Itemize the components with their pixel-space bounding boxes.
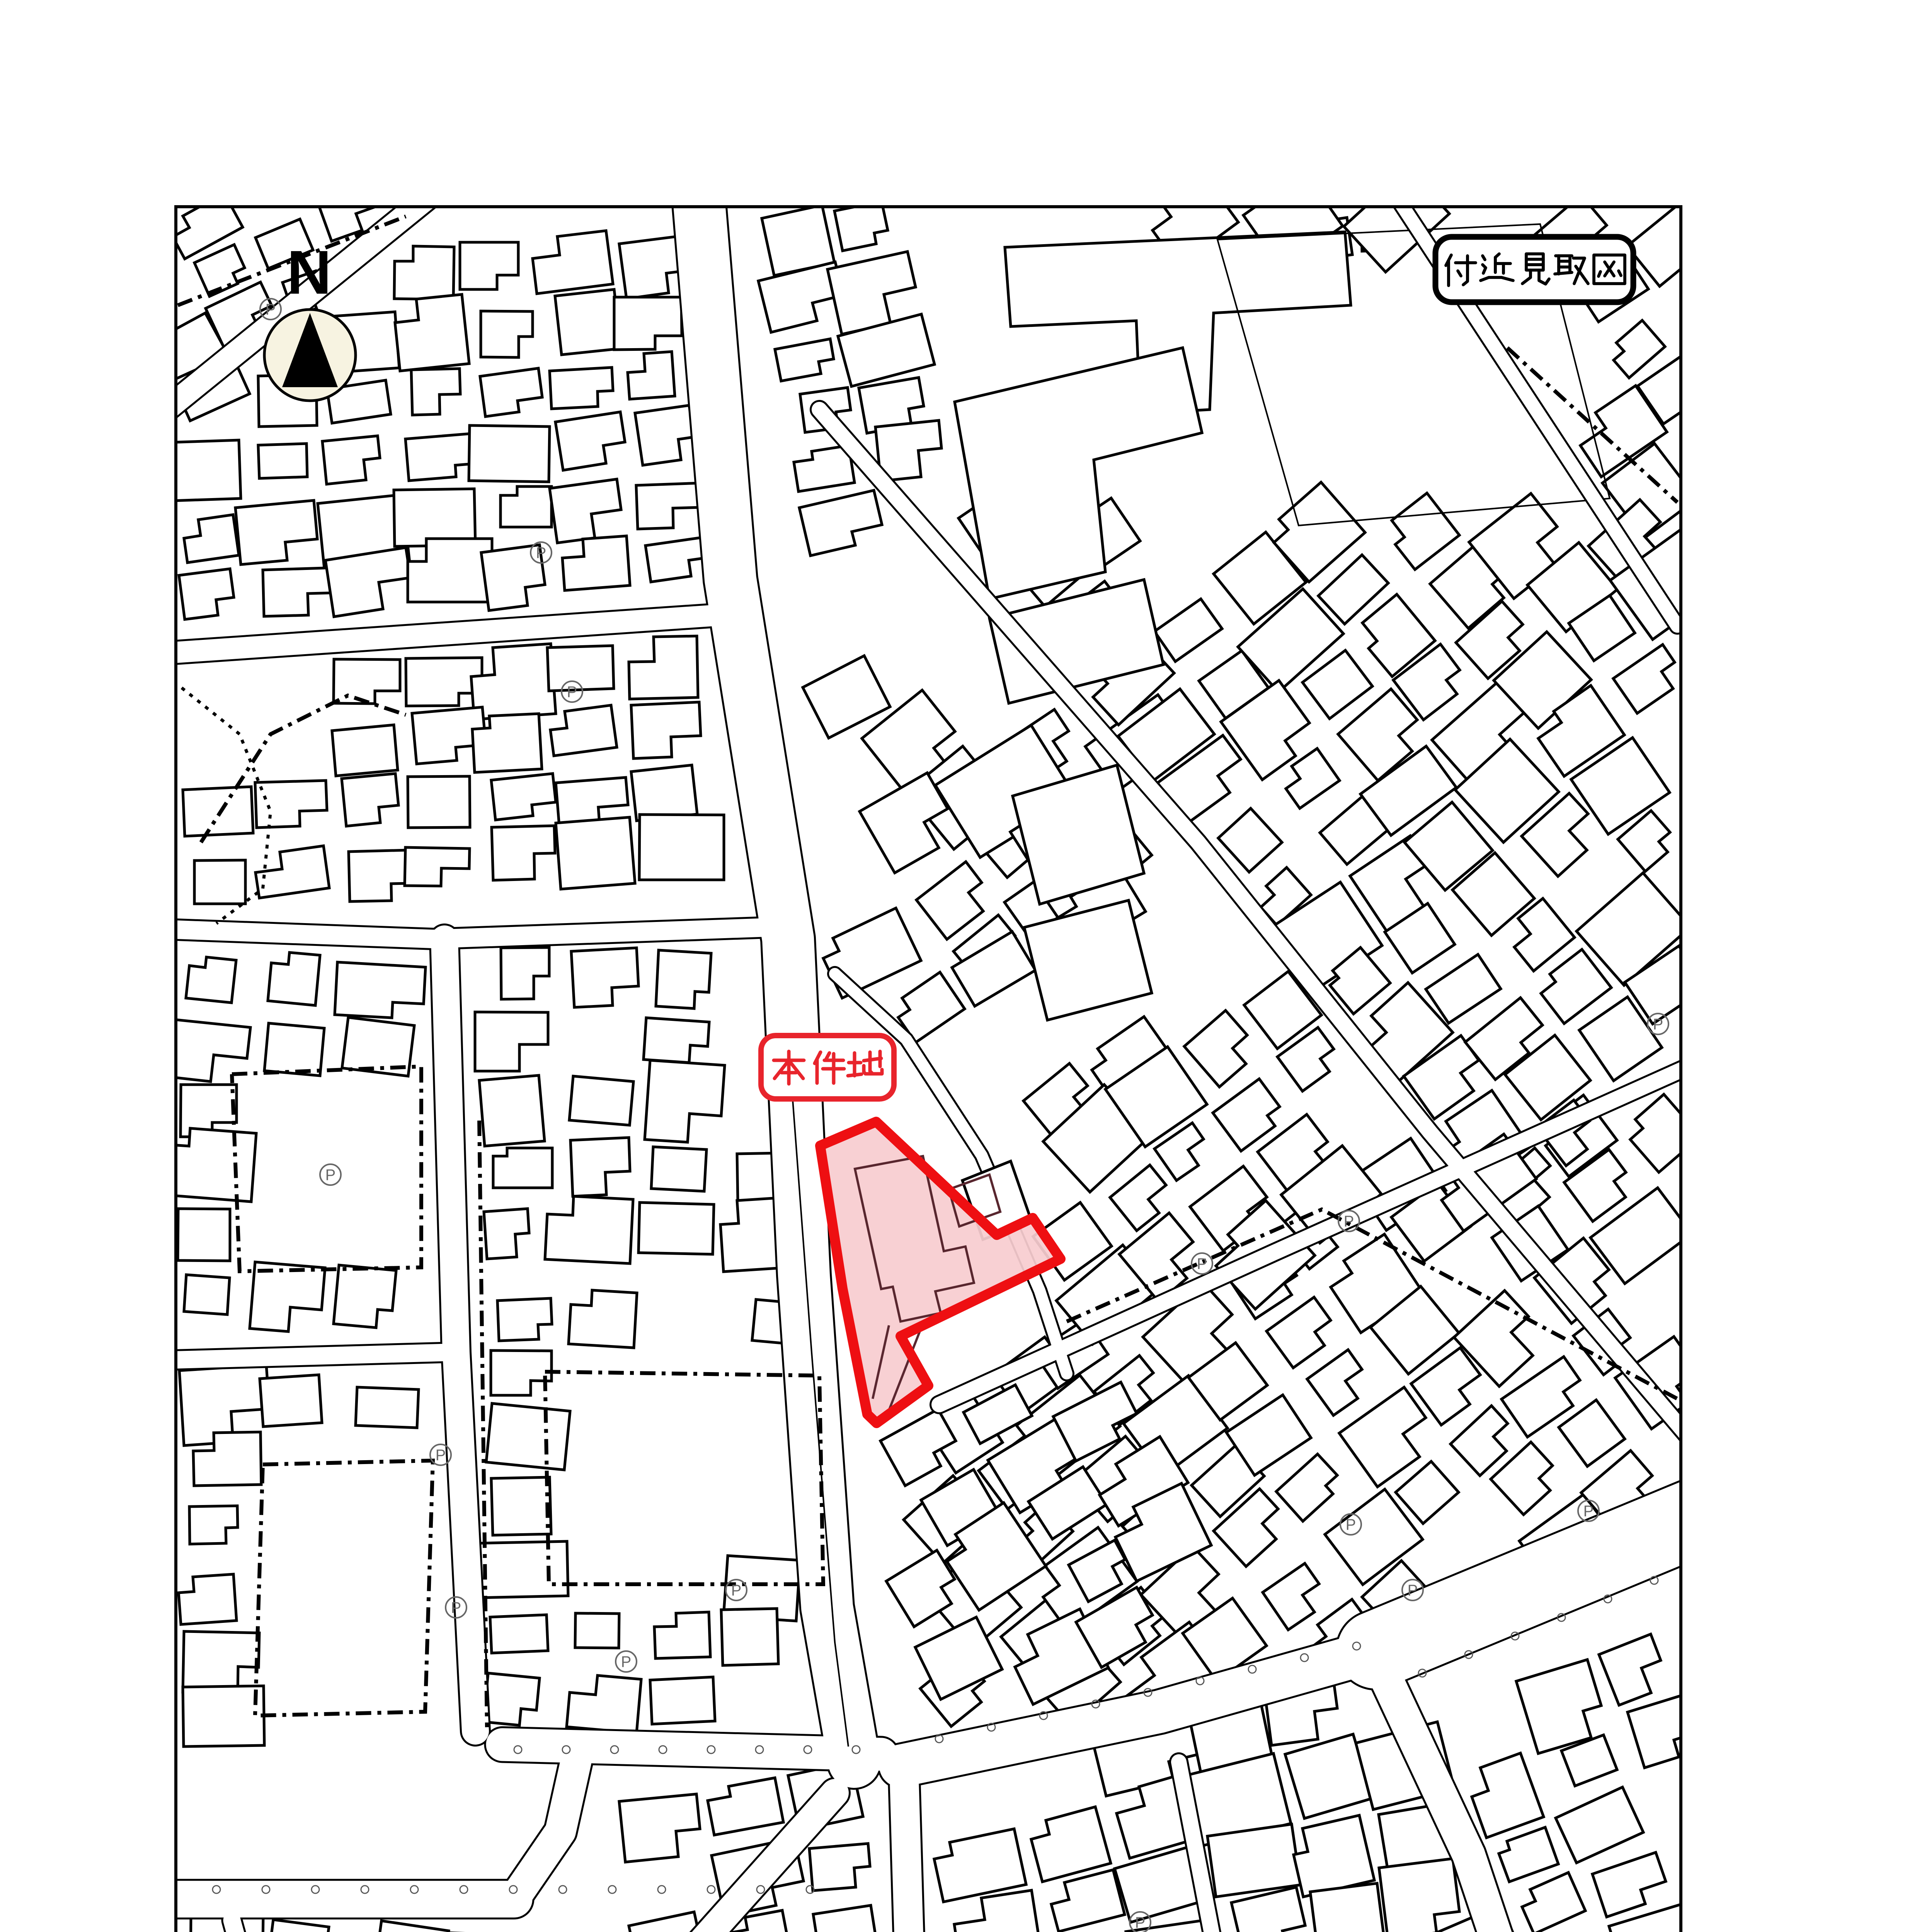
svg-text:P: P: [1583, 1503, 1594, 1520]
svg-text:P: P: [325, 1167, 336, 1184]
svg-text:P: P: [731, 1582, 742, 1599]
svg-text:P: P: [451, 1599, 461, 1616]
svg-text:P: P: [1344, 1213, 1354, 1230]
svg-text:P: P: [436, 1447, 446, 1464]
svg-text:P: P: [567, 684, 577, 701]
svg-text:P: P: [1346, 1516, 1356, 1533]
svg-text:P: P: [266, 301, 276, 318]
svg-text:P: P: [1408, 1582, 1418, 1599]
svg-text:P: P: [536, 544, 546, 561]
svg-text:P: P: [1197, 1255, 1207, 1272]
svg-text:P: P: [1135, 1914, 1146, 1931]
svg-text:P: P: [621, 1653, 632, 1670]
svg-text:P: P: [1653, 1016, 1663, 1033]
svg-text:N: N: [287, 238, 332, 307]
